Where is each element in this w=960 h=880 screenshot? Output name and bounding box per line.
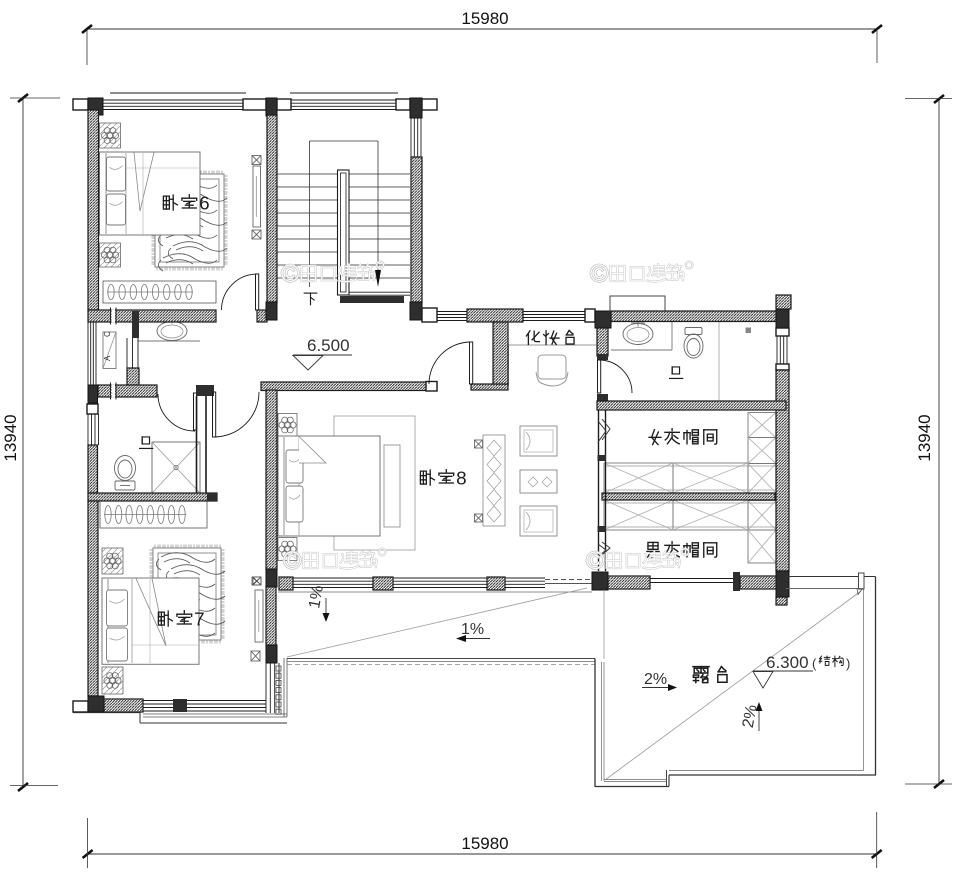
svg-text:(: ( — [812, 656, 817, 671]
svg-text:2%: 2% — [644, 671, 667, 688]
svg-text:©: © — [586, 547, 605, 575]
svg-text:©: © — [590, 260, 609, 288]
svg-text:8: 8 — [456, 468, 467, 489]
svg-text:15980: 15980 — [461, 834, 508, 853]
svg-text:6.300: 6.300 — [766, 653, 809, 672]
svg-text:C: C — [103, 331, 112, 337]
svg-text:): ) — [846, 656, 850, 671]
svg-text:©: © — [283, 547, 302, 575]
svg-text:©: © — [281, 260, 300, 288]
svg-text:A: A — [103, 355, 112, 361]
svg-text:7: 7 — [194, 609, 205, 630]
svg-text:6: 6 — [199, 193, 210, 214]
svg-text:13940: 13940 — [1, 414, 20, 461]
svg-text:1%: 1% — [461, 621, 484, 638]
svg-text:6.500: 6.500 — [307, 336, 350, 355]
svg-text:15980: 15980 — [461, 9, 508, 28]
svg-text:13940: 13940 — [915, 414, 934, 461]
